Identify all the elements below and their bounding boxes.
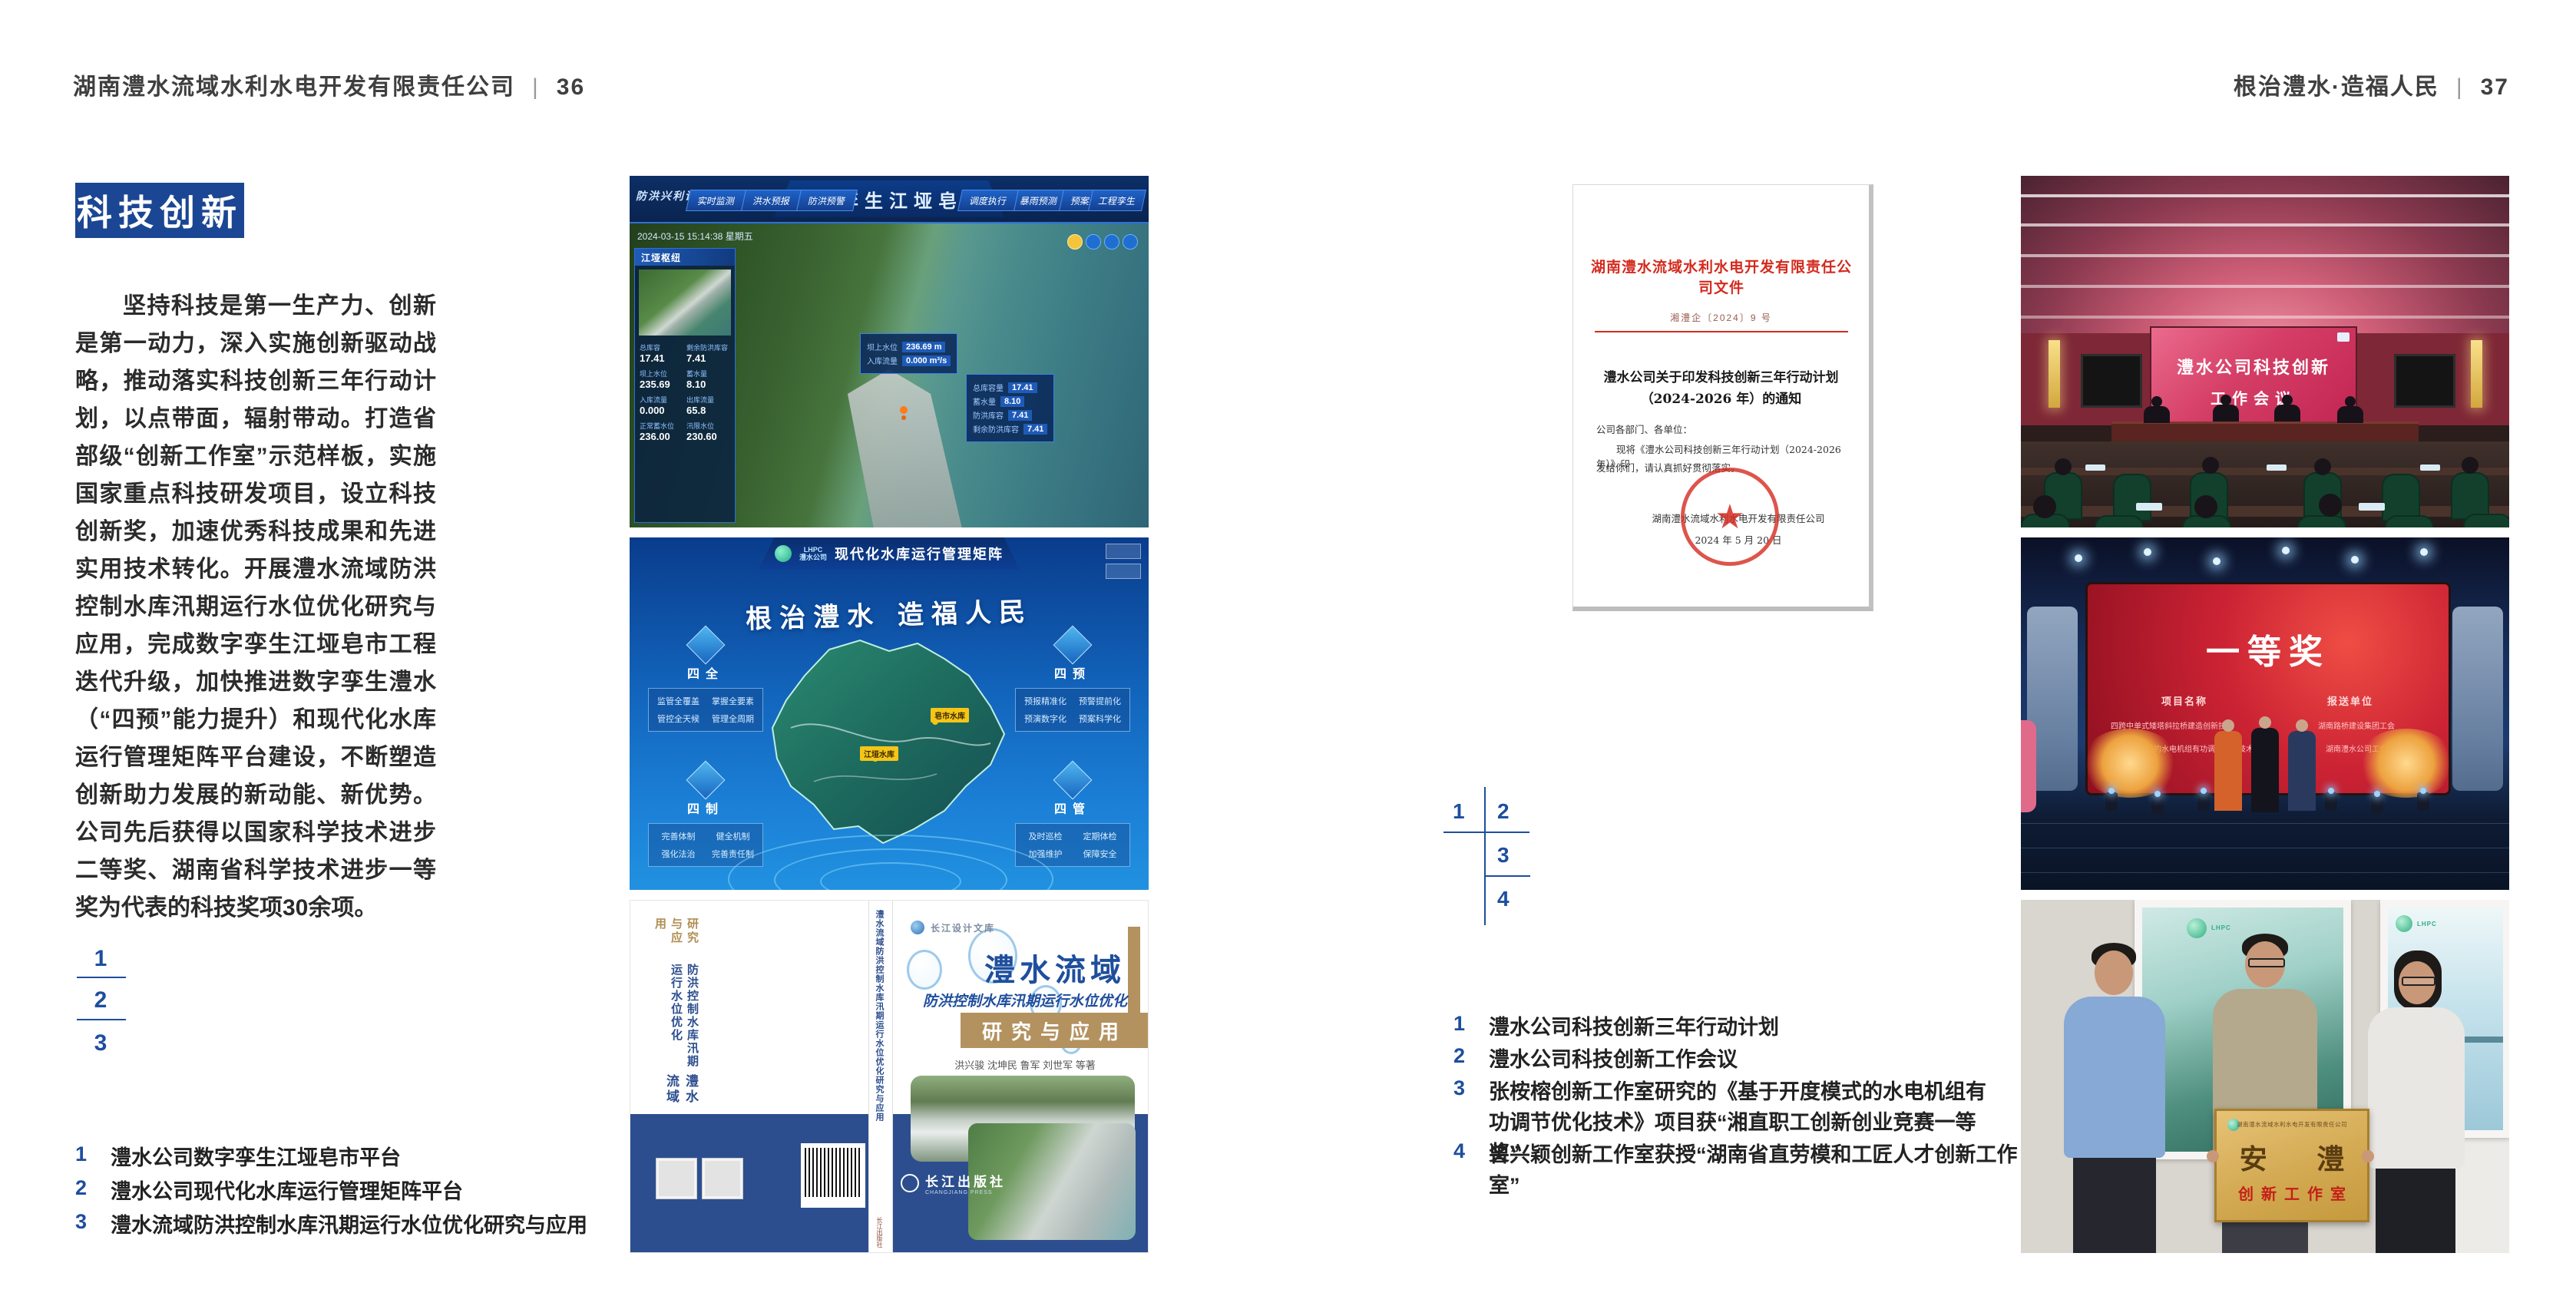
camera-icon <box>1104 234 1119 250</box>
plaque-subtitle: 创新工作室 <box>2217 1182 2367 1204</box>
audience-head <box>2202 457 2219 474</box>
dashboard-tab: 洪水预报 <box>741 190 802 211</box>
dashboard-left-panel: 江垭枢纽 总库容17.41 剩余防洪库容7.41 坝上水位235.69 蓄水量8… <box>634 248 736 523</box>
tip-value: 236.69 m <box>902 342 945 352</box>
figure-group-photo: LHPC LHPC <box>2021 900 2509 1253</box>
light-strip <box>2021 254 2509 257</box>
stage-light-fixture <box>2197 792 2210 811</box>
desk-paper <box>2136 503 2162 511</box>
book-title-band: 研究与应用 <box>961 1013 1149 1048</box>
seal-star: ★ <box>1715 498 1744 537</box>
plaque-title: 安 澧 <box>2217 1137 2367 1177</box>
caption-row: 4 曾兴颖创新工作室获授“湖南省直劳模和工匠人才创新工作室” <box>1453 1139 2022 1201</box>
stage-light-fixture <box>2151 795 2164 814</box>
caption-text: 澧水公司数字孪生江垭皂市平台 <box>111 1142 401 1173</box>
figure-key-4: 4 <box>1497 887 1510 911</box>
caption-row: 3 澧水流域防洪控制水库汛期运行水位优化研究与应用 <box>75 1210 587 1241</box>
poster-logo-text: LHPC <box>2211 924 2231 931</box>
publisher-logo-icon <box>901 1174 919 1192</box>
tip-value: 17.41 <box>1008 382 1037 393</box>
user-icon <box>1067 234 1083 250</box>
document-number: 湘澧企〔2024〕9 号 <box>1573 311 1869 324</box>
dashboard-tab: 实时监测 <box>686 190 747 211</box>
tip-value: 7.41 <box>1008 410 1032 421</box>
section-title-badge: 科技创新 <box>75 183 244 238</box>
audience-chair <box>2382 474 2420 521</box>
caption-row: 2 澧水公司科技创新工作会议 <box>1453 1044 2022 1075</box>
body-paragraph: 坚持科技是第一生产力、创新是第一动力，深入实施创新驱动战略，推动落实科技创新三年… <box>75 287 436 927</box>
matrix-title: 现代化水库运行管理矩阵 <box>835 544 1004 564</box>
figure-key-1: 1 <box>75 946 126 972</box>
stat-value: 8.10 <box>686 379 730 390</box>
key-horizontal-line <box>1484 875 1530 877</box>
right-figure-key: 1 2 3 4 <box>1443 787 1543 929</box>
matrix-button <box>1106 544 1141 559</box>
document-red-header: 湖南澧水流域水利水电开发有限责任公司文件 <box>1589 256 1854 297</box>
audience-head <box>2462 457 2478 474</box>
stat-value: 17.41 <box>640 352 683 364</box>
tip-value: 0.000 m³/s <box>902 355 951 366</box>
map-label: 江垭水库 <box>860 746 898 761</box>
speaker-silhouette <box>2274 405 2300 422</box>
stage-pillar <box>2452 607 2503 791</box>
tip-label: 剩余防洪库容 <box>973 423 1019 435</box>
wall-tv <box>2081 354 2142 408</box>
legs <box>2376 1169 2455 1253</box>
head-table <box>2111 422 2419 444</box>
light-strip <box>2021 223 2509 226</box>
wall-lamp <box>2471 340 2482 408</box>
figure-key-1: 1 <box>1453 799 1465 824</box>
stage-spotlight <box>2420 548 2428 556</box>
audience-chair <box>2451 472 2489 520</box>
tip-label: 总库容量 <box>973 382 1004 393</box>
stat-label: 出库流量 <box>686 395 730 405</box>
hand <box>2207 1150 2219 1162</box>
caption-text: 澧水公司现代化水库运行管理矩阵平台 <box>111 1176 463 1207</box>
unit-row: 湖南路桥建设集团工会 <box>2318 719 2395 731</box>
figure-key-2: 2 <box>1497 799 1510 824</box>
company-name: 湖南澧水流域水利水电开发有限责任公司 <box>73 74 515 100</box>
right-page-header: 根治澧水·造福人民|37 <box>2234 68 2509 101</box>
column-header: 报送单位 <box>2327 693 2373 708</box>
golden-glow <box>2356 729 2456 798</box>
stage-spotlight <box>2213 557 2221 565</box>
tip-value: 7.41 <box>1023 424 1047 435</box>
page-number-36: 36 <box>557 74 585 100</box>
speaker-silhouette <box>2144 406 2170 423</box>
matrix-button <box>1106 564 1141 579</box>
key-vertical-line <box>1484 787 1486 925</box>
caption-number: 3 <box>75 1210 94 1241</box>
audience-head <box>2314 458 2331 475</box>
face <box>2095 951 2133 995</box>
caption-number: 1 <box>1453 1012 1472 1043</box>
wall-lamp <box>2049 340 2060 408</box>
series-logo-icon <box>911 921 924 934</box>
floor-line <box>2021 823 2509 824</box>
matrix-group-sizhi: 四制 完善体制 健全机制 强化法治 完善责任制 <box>648 766 763 867</box>
dashboard-tab: 调度执行 <box>957 190 1019 211</box>
caption-row: 2 澧水公司现代化水库运行管理矩阵平台 <box>75 1176 463 1207</box>
motto: 根治澧水·造福人民 <box>2234 74 2439 100</box>
stat-label: 坝上水位 <box>640 369 683 379</box>
figure-key-2: 2 <box>75 987 126 1013</box>
hand <box>2362 1150 2374 1162</box>
header-divider: | <box>532 74 540 100</box>
lhpc-logo-icon <box>775 545 792 562</box>
spine-title: 澧水流域防洪控制水库汛期运行水位优化研究与应用 <box>873 910 885 1171</box>
matrix-group-siyu: 四预 预报精准化 预警提前化 预演数字化 预案科学化 <box>1015 631 1130 732</box>
audience-head <box>2033 495 2056 518</box>
publisher-name-en: CHANGJIANG PRESS <box>925 1190 1006 1195</box>
stage-light-fixture <box>2105 792 2118 811</box>
speaker-silhouette <box>2337 406 2363 423</box>
settings-icon <box>1123 234 1138 250</box>
desk-paper <box>2267 465 2287 471</box>
back-cover-vertical-title: 研究与应用 防洪控制水库汛期运行水位优化 澧水流域 <box>652 918 700 1109</box>
key-divider-line <box>77 1019 126 1020</box>
caption-row: 1 澧水公司数字孪生江垭皂市平台 <box>75 1142 401 1173</box>
header-divider: | <box>2456 74 2464 100</box>
caption-number: 2 <box>75 1176 94 1207</box>
key-horizontal-line <box>1443 832 1529 833</box>
book-authors: 洪兴骏 沈坤民 鲁军 刘世军 等著 <box>901 1057 1149 1072</box>
caption-number: 4 <box>1453 1139 1472 1201</box>
stat-value: 236.00 <box>640 431 683 442</box>
caption-text: 澧水流域防洪控制水库汛期运行水位优化研究与应用 <box>111 1210 587 1241</box>
audience-chair <box>2463 514 2509 527</box>
figure-digital-twin-dashboard: 防洪兴利调度 数字孪生江垭皂市 实时监测 洪水预报 防洪预警 暴雨预测 预案生成… <box>630 176 1149 527</box>
map-label: 皂市水库 <box>931 708 969 722</box>
stat-value: 235.69 <box>640 379 683 390</box>
floor-line <box>2021 848 2509 848</box>
desk-paper <box>2359 503 2385 511</box>
audience-chair <box>2113 474 2151 521</box>
stat-label: 汛限水位 <box>686 421 730 431</box>
spine-publisher: 长江出版社 <box>875 1217 884 1248</box>
series-logo-row: 长江设计文库 <box>911 921 995 934</box>
left-figure-key: 1 2 3 <box>75 943 129 1066</box>
poster-logo-icon <box>2396 915 2412 932</box>
tip-label: 蓄水量 <box>973 395 996 407</box>
watershed-map <box>760 636 1018 851</box>
host-figure <box>2021 720 2036 812</box>
figure-meeting-photo: 澧水公司科技创新 工作会议 <box>2021 176 2509 527</box>
awardee-blue <box>2288 731 2316 811</box>
qr-code <box>656 1159 696 1199</box>
light-strip <box>2021 316 2509 319</box>
ceiling <box>2021 176 2509 333</box>
map-tooltip-water-level: 坝上水位236.69 m 入库流量0.000 m³/s <box>860 333 957 374</box>
figure-book-cover: 研究与应用 防洪控制水库汛期运行水位优化 澧水流域 澧水流域防洪控制水库汛期运行… <box>630 900 1149 1253</box>
tip-value: 8.10 <box>1000 396 1024 407</box>
stage-light-fixture <box>2417 792 2429 811</box>
tip-label: 防洪库容 <box>973 409 1004 421</box>
alert-icon <box>1086 234 1101 250</box>
speaker-silhouette <box>2213 405 2239 422</box>
stat-label: 剩余防洪库容 <box>686 342 730 352</box>
plaque-org-line: 湖南澧水流域水利水电开发有限责任公司 <box>2217 1120 2367 1129</box>
torso <box>2064 997 2165 1158</box>
wall-tv <box>2394 354 2455 408</box>
doc-salutation: 公司各部门、各单位： <box>1596 422 1847 436</box>
screen-title-line2: 工作会议 <box>2151 386 2356 408</box>
screen-logo-icon <box>2337 332 2349 342</box>
caption-text: 澧水公司科技创新工作会议 <box>1489 1044 1738 1075</box>
matrix-group-siquan: 四全 监管全覆盖 掌握全要素 管控全天候 管理全周期 <box>648 631 763 732</box>
water-droplet <box>907 950 942 990</box>
key-divider-line <box>77 977 126 978</box>
institution-icon <box>686 761 726 800</box>
matrix-group-siguan: 四管 及时巡检 定期体检 加强维护 保障安全 <box>1015 766 1130 867</box>
poster-logo-icon <box>2187 918 2207 938</box>
barcode <box>801 1143 865 1208</box>
panel-title: 江垭枢纽 <box>635 249 735 266</box>
stat-value: 65.8 <box>686 405 730 416</box>
audience-chair <box>2095 515 2144 527</box>
projection-screen: 澧水公司科技创新 工作会议 <box>2150 326 2357 426</box>
tip-label: 入库流量 <box>867 355 898 366</box>
stage-spotlight <box>2144 548 2151 556</box>
desk-paper <box>2085 465 2105 471</box>
qr-code <box>703 1159 742 1199</box>
desk-paper <box>2420 465 2440 471</box>
figure-key-3: 3 <box>1497 843 1510 868</box>
stat-label: 蓄水量 <box>686 369 730 379</box>
book-subtitle: 防洪控制水库汛期运行水位优化 <box>901 990 1149 1010</box>
figure-key-3: 3 <box>75 1030 126 1056</box>
matrix-header: LHPC澧水公司 现代化水库运行管理矩阵 <box>759 537 1020 570</box>
document-red-rule <box>1595 331 1848 332</box>
audience-chair <box>2297 515 2346 527</box>
stage-light-fixture <box>2371 795 2383 814</box>
caption-number: 2 <box>1453 1044 1472 1075</box>
glasses <box>2248 958 2285 967</box>
dashboard-tab: 防洪预警 <box>796 190 858 211</box>
notice-title-line1: 澧水公司关于印发科技创新三年行动计划 <box>1573 366 1869 385</box>
stat-value: 230.60 <box>686 431 730 442</box>
tip-label: 坝上水位 <box>867 341 898 352</box>
worker-marker <box>900 406 908 414</box>
caption-row: 1 澧水公司科技创新三年行动计划 <box>1453 1012 2022 1043</box>
dam-thumbnail <box>639 269 731 336</box>
dashboard-tab: 工程孪生 <box>1088 190 1146 211</box>
stat-label: 总库容 <box>640 342 683 352</box>
stage-spotlight <box>2351 556 2359 564</box>
forecast-icon <box>1053 626 1093 665</box>
light-strip <box>2021 194 2509 197</box>
lhpc-logo-text: LHPC澧水公司 <box>799 546 827 561</box>
audience-floor <box>2021 441 2509 527</box>
book-spine: 澧水流域防洪控制水库汛期运行水位优化研究与应用 长江出版社 <box>868 901 893 1253</box>
book-title: 澧水流域 <box>961 945 1149 990</box>
stat-label: 入库流量 <box>640 395 683 405</box>
screen-title-line1: 澧水公司科技创新 <box>2151 354 2356 379</box>
stat-value: 7.41 <box>686 352 730 364</box>
map-tooltip-reservoir: 总库容量17.41 蓄水量8.10 防洪库容7.41 剩余防洪库容7.41 <box>966 374 1054 442</box>
brochure-spread: 湖南澧水流域水利水电开发有限责任公司|36 科技创新 坚持科技是第一生产力、创新… <box>0 0 2576 1306</box>
stage-spotlight <box>2075 554 2082 562</box>
legs <box>2073 1158 2156 1253</box>
award-title: 一等奖 <box>2088 624 2449 673</box>
stage-light-fixture <box>2325 792 2337 811</box>
section-title: 科技创新 <box>77 185 243 236</box>
figure-official-document: 湖南澧水流域水利水电开发有限责任公司文件 湘澧企〔2024〕9 号 澧水公司关于… <box>1572 184 1873 611</box>
red-seal-icon: ★ <box>1681 468 1779 566</box>
series-name: 长江设计文库 <box>931 921 995 934</box>
stat-value: 0.000 <box>640 405 683 416</box>
torso <box>2368 1007 2465 1169</box>
stat-label: 正常蓄水位 <box>640 421 683 431</box>
glasses <box>2402 977 2435 986</box>
poster-logo-text: LHPC <box>2417 921 2437 927</box>
figure-award-stage-photo: 一等奖 项目名称 报送单位 四跨中单式矮塔斜拉桥建造创新技术 基于开度模式的水电… <box>2021 537 2509 890</box>
maintenance-icon <box>1053 761 1093 800</box>
column-header: 项目名称 <box>2161 693 2207 708</box>
caption-text: 曾兴颖创新工作室获授“湖南省直劳模和工匠人才创新工作室” <box>1489 1139 2022 1201</box>
presenter-suit <box>2251 728 2279 812</box>
golden-glow <box>2080 729 2180 798</box>
publisher-block: 长江出版社 CHANGJIANG PRESS <box>901 1171 1006 1195</box>
audience-head <box>2319 494 2342 517</box>
caption-text: 澧水公司科技创新三年行动计划 <box>1489 1012 1779 1043</box>
floor-line <box>2021 872 2509 873</box>
panel-stats: 总库容17.41 剩余防洪库容7.41 坝上水位235.69 蓄水量8.10 入… <box>635 339 735 445</box>
light-strip <box>2021 285 2509 288</box>
awardee-orange <box>2214 731 2242 811</box>
innovation-studio-plaque: 湖南澧水流域水利水电开发有限责任公司 安 澧 创新工作室 <box>2214 1109 2369 1222</box>
page-number-37: 37 <box>2481 74 2509 100</box>
notice-title-line2: （2024-2026 年）的通知 <box>1573 388 1869 407</box>
figure-matrix-platform: LHPC澧水公司 现代化水库运行管理矩阵 根治澧水 造福人民 皂市水库 江垭水库… <box>630 537 1149 890</box>
audience-head <box>2055 458 2072 475</box>
monitor-icon <box>686 626 726 665</box>
publisher-name: 长江出版社 <box>925 1171 1006 1190</box>
left-page-header: 湖南澧水流域水利水电开发有限责任公司|36 <box>73 68 585 101</box>
desk-row <box>2021 506 2509 517</box>
stage-spotlight <box>2282 547 2290 554</box>
audience-head <box>2194 495 2217 518</box>
dashboard-datetime: 2024-03-15 15:14:38 星期五 <box>637 230 753 243</box>
audience-chair <box>2385 515 2434 527</box>
caption-number: 1 <box>75 1142 94 1173</box>
